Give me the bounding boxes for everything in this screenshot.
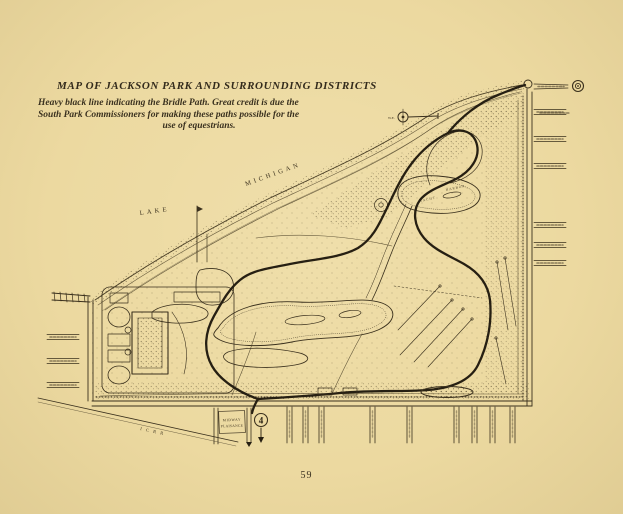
street-stubs-bottom xyxy=(287,407,515,443)
lake-label: LAKE xyxy=(139,206,170,217)
street-stubs-right xyxy=(534,110,566,266)
street-stubs-left xyxy=(47,335,79,388)
running-track xyxy=(421,387,473,398)
jackson-park-map: LAKE MICHIGAN xyxy=(0,0,623,514)
book-page: MAP OF JACKSON PARK AND SURROUNDING DIST… xyxy=(0,0,623,514)
midway-label-1: MIDWAY xyxy=(223,418,242,423)
north-arrow-icon: 4 xyxy=(255,414,268,444)
svg-text:4: 4 xyxy=(259,416,264,426)
page-number: 59 xyxy=(0,470,613,481)
rail-band xyxy=(52,292,90,302)
midway-label-2: PLAISANCE xyxy=(221,424,244,429)
bullseye-icon xyxy=(534,81,584,114)
icrr-label: I C R R xyxy=(140,426,166,436)
midway-plaisance: MIDWAY PLAISANCE 4 xyxy=(214,408,268,447)
compass-label: W.E. xyxy=(388,116,395,120)
icrr-railroad: I C R R xyxy=(38,398,238,446)
